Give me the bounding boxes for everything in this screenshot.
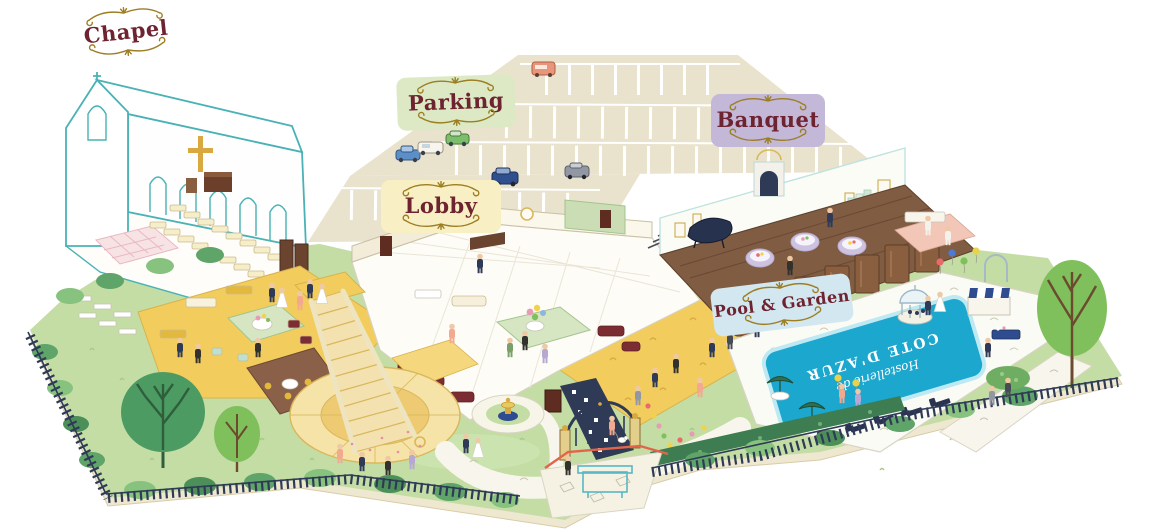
ornament-flourish-icon <box>389 217 493 230</box>
label-banquet[interactable]: Banquet <box>711 94 825 147</box>
label-parking[interactable]: Parking <box>396 74 516 131</box>
ornament-flourish-icon <box>405 111 507 128</box>
label-banquet-text: Banquet <box>716 108 819 131</box>
label-lobby[interactable]: Lobby <box>381 180 501 233</box>
shuttle-bus <box>532 62 555 77</box>
white-van <box>418 142 443 155</box>
fountain <box>472 395 544 433</box>
ornament-flourish-icon <box>719 131 817 144</box>
venue-map-illustration: Hostellerie de COTE D'AZUR <box>0 0 1150 530</box>
venue-map: Hostellerie de COTE D'AZUR <box>0 0 1150 530</box>
label-lobby-text: Lobby <box>405 194 478 217</box>
